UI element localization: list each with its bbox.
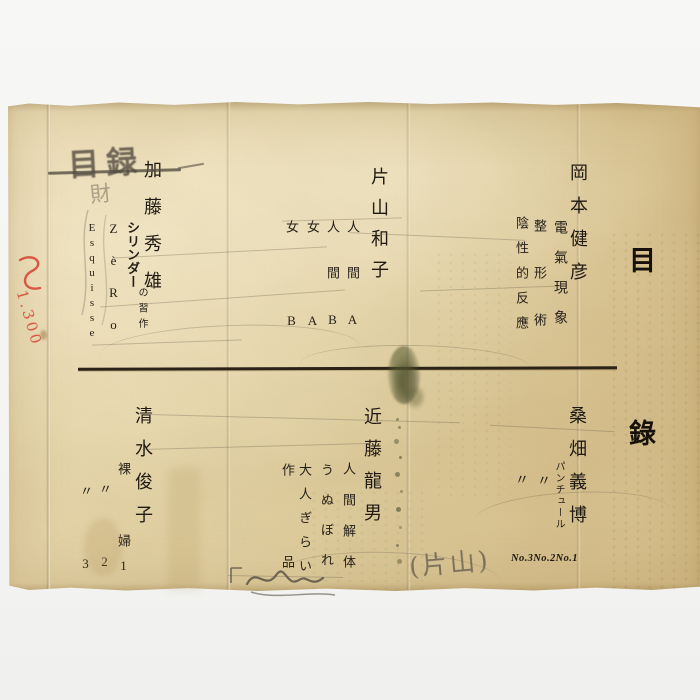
- paper-spot: [40, 330, 47, 340]
- work-title-insei: 陰性的反應: [515, 216, 528, 341]
- work-title-denki: 電氣現象: [552, 220, 566, 340]
- paper-smudge: [168, 468, 200, 590]
- mold-speckles: [396, 418, 399, 421]
- author-name-katayama: 片山和子: [370, 167, 388, 291]
- ditto-mark: 〃: [513, 472, 527, 486]
- pencil-scrawl: [58, 205, 148, 335]
- document-title: 目錄: [626, 246, 653, 592]
- work-title-seikei: 整形術: [533, 219, 546, 360]
- red-pencil-squiggle: [10, 250, 58, 308]
- paper-smudge: [84, 518, 122, 576]
- ink-stain: [404, 384, 426, 410]
- paper-top-edge-shadow: [8, 101, 700, 112]
- author-name-okamoto: 岡本健彦: [569, 163, 587, 295]
- ditto-mark: 〃: [535, 473, 549, 487]
- number-labels: No.3No.2No.1: [511, 553, 578, 564]
- work-title-rafu-1: 裸 婦1: [117, 462, 130, 584]
- author-name-kondo: 近藤龍男: [363, 407, 381, 535]
- work-title-sakuhin: 作品: [281, 463, 294, 647]
- author-name-shimizu: 清水俊子: [134, 406, 152, 538]
